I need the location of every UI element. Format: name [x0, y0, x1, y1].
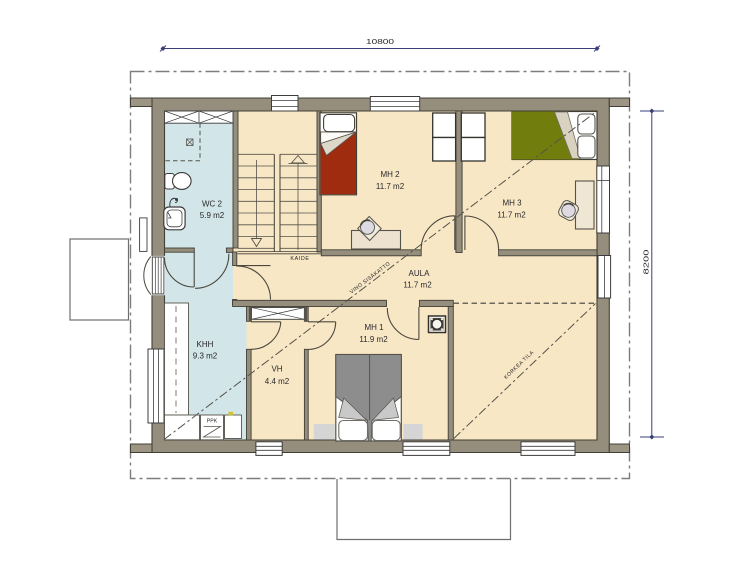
svg-text:8200: 8200: [642, 250, 651, 275]
svg-text:KAIDE: KAIDE: [290, 256, 309, 262]
svg-text:VH: VH: [271, 365, 282, 374]
svg-text:PPK: PPK: [207, 419, 218, 425]
svg-text:MH 2: MH 2: [380, 170, 400, 179]
svg-text:11.7 m2: 11.7 m2: [497, 211, 526, 220]
svg-text:KHH: KHH: [197, 340, 214, 349]
svg-text:4.4 m2: 4.4 m2: [265, 377, 290, 386]
svg-text:MH 1: MH 1: [364, 323, 384, 332]
svg-text:5.9 m2: 5.9 m2: [200, 211, 225, 220]
svg-text:11.9 m2: 11.9 m2: [359, 335, 388, 344]
svg-text:10800: 10800: [366, 37, 394, 46]
svg-text:11.7 m2: 11.7 m2: [403, 281, 432, 290]
svg-text:WC 2: WC 2: [202, 200, 223, 209]
svg-text:9.3 m2: 9.3 m2: [193, 352, 218, 361]
svg-text:11.7 m2: 11.7 m2: [376, 182, 405, 191]
svg-text:MH 3: MH 3: [502, 199, 522, 208]
svg-text:AULA: AULA: [409, 269, 431, 278]
